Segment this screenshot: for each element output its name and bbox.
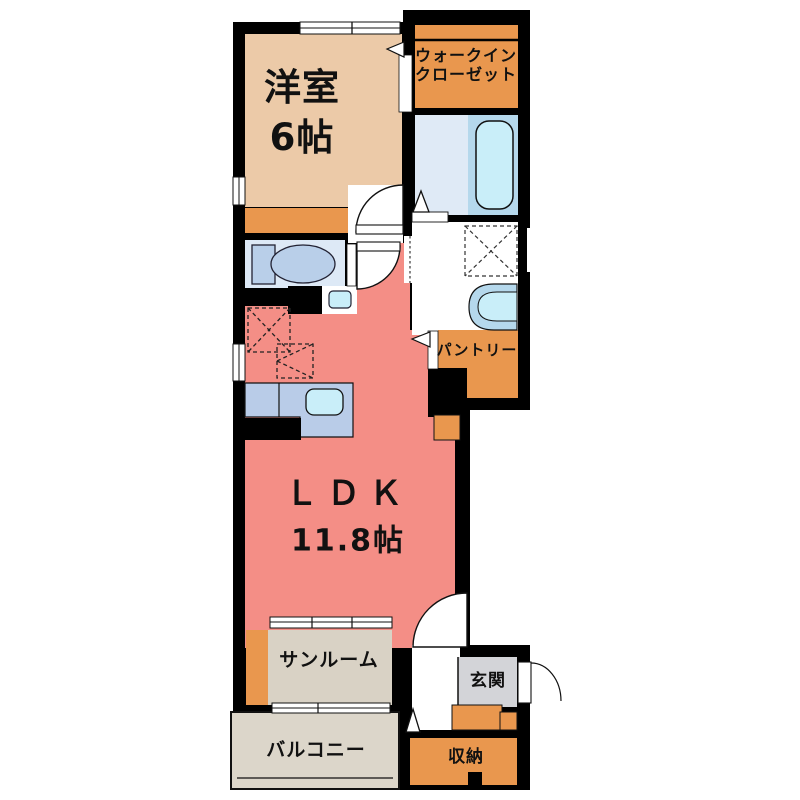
water-heater-box	[434, 415, 460, 440]
kitchen-sink-icon	[306, 389, 343, 415]
wash-basin-bowl	[478, 292, 517, 321]
western-closet	[245, 208, 348, 233]
bathtub-icon	[476, 121, 513, 209]
bath-door-sill	[412, 212, 448, 222]
door-wic	[399, 55, 412, 112]
hand-basin-icon	[329, 291, 351, 308]
window-sunroom-balcony	[272, 703, 390, 713]
floorplan-drawing	[0, 0, 800, 800]
front-door-arc	[531, 663, 561, 701]
label-balcony: バルコニー	[266, 739, 366, 761]
wall-below-toilet	[245, 288, 290, 306]
window-western-top	[300, 22, 400, 34]
washroom-wall-notch	[527, 228, 534, 272]
door-washroom-sliding	[404, 236, 412, 283]
label-western-room: 洋室 6帖	[264, 63, 340, 163]
front-door-leaf	[518, 662, 531, 703]
washing-machine-space-icon	[465, 226, 517, 276]
door-leaf-western	[356, 225, 403, 234]
door-leaf-ldk	[357, 242, 400, 251]
shoe-cabinet	[452, 705, 502, 730]
toilet-bowl-icon	[271, 245, 335, 283]
storage-wall-notch	[468, 772, 482, 790]
shoe-cabinet-step	[500, 712, 517, 730]
label-ldk-size: 11.8帖	[291, 523, 405, 558]
floorplan-canvas: 洋室 6帖 ウォークイン クローゼット パントリー ＬＤＫ 11.8帖 サンルー…	[0, 0, 800, 800]
label-storage: 収納	[448, 747, 484, 767]
label-sunroom: サンルーム	[279, 649, 378, 671]
label-walk-in-closet: ウォークイン クローゼット	[415, 47, 517, 85]
label-ldk: ＬＤＫ	[285, 475, 411, 514]
door-toilet	[347, 244, 356, 286]
wall-basin-alcove	[288, 286, 322, 314]
sunroom-shelf-strip	[246, 630, 268, 705]
label-genkan: 玄関	[470, 671, 506, 691]
wall-kitchen-end	[245, 418, 301, 440]
room-pantry-floor	[467, 372, 518, 398]
wall-pantry-corner	[428, 368, 467, 417]
window-western-left	[233, 177, 245, 205]
label-pantry: パントリー	[437, 342, 518, 360]
window-ldk-sunroom	[270, 617, 392, 628]
window-ldk-left	[233, 344, 245, 381]
